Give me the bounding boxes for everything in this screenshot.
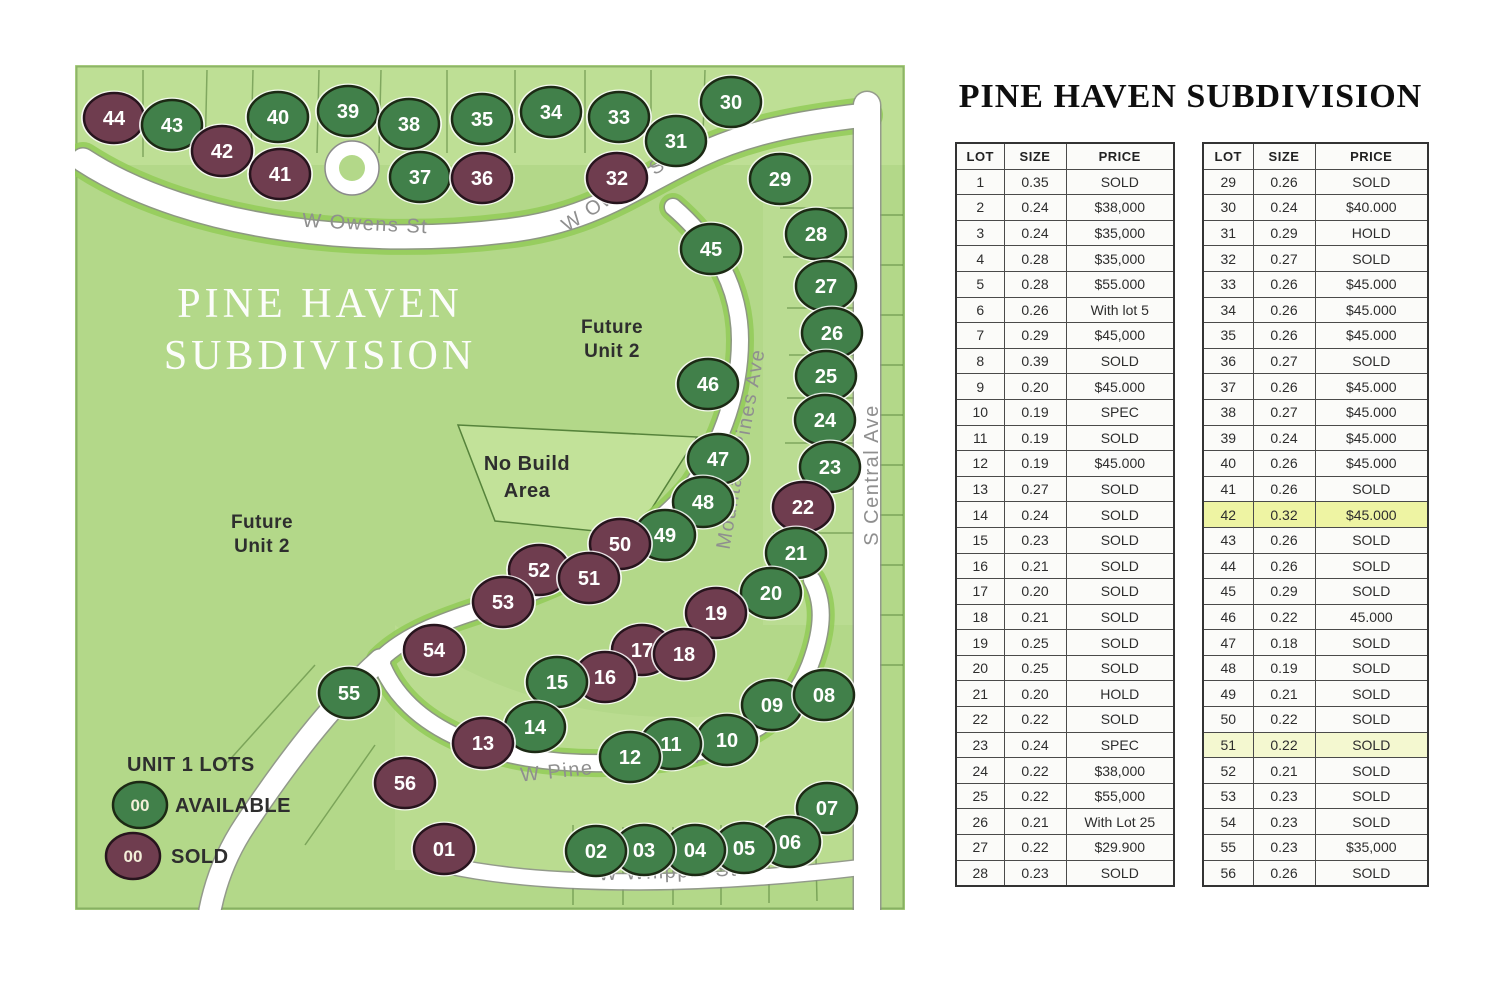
lot-cell: 5 (956, 271, 1004, 297)
size-cell: 0.21 (1004, 604, 1066, 630)
lot-number: 22 (792, 497, 814, 519)
price-cell: SOLD (1066, 348, 1174, 374)
lot-cell: 8 (956, 348, 1004, 374)
lot-number: 18 (673, 644, 695, 666)
table-row: 520.21SOLD (1203, 758, 1428, 784)
map-lot-42: 42 (189, 124, 255, 179)
lot-cell: 12 (956, 451, 1004, 477)
price-cell: HOLD (1315, 220, 1428, 246)
table-row: 550.23$35,000 (1203, 835, 1428, 861)
price-cell: SOLD (1315, 527, 1428, 553)
price-cell: $35,000 (1066, 220, 1174, 246)
lot-number: 15 (546, 672, 568, 694)
table-row: 130.27SOLD (956, 476, 1174, 502)
size-cell: 0.27 (1004, 476, 1066, 502)
lot-cell: 27 (956, 835, 1004, 861)
lot-cell: 23 (956, 732, 1004, 758)
lot-cell: 14 (956, 502, 1004, 528)
size-cell: 0.22 (1004, 783, 1066, 809)
price-cell: $55.000 (1066, 271, 1174, 297)
subdivision-map: PINE HAVEN SUBDIVISION Future Unit 2 Fut… (75, 65, 905, 910)
lot-cell: 38 (1203, 399, 1253, 425)
lot-number: 36 (471, 168, 493, 190)
table-header-row: LOTSIZEPRICE (1203, 143, 1428, 169)
size-cell: 0.23 (1253, 835, 1315, 861)
lot-number: 29 (769, 169, 791, 191)
lot-cell: 20 (956, 655, 1004, 681)
table-row: 390.24$45.000 (1203, 425, 1428, 451)
no-build-area-label-line2: Area (504, 480, 551, 502)
size-cell: 0.24 (1004, 732, 1066, 758)
table-row: 70.29$45,000 (956, 323, 1174, 349)
lot-number: 02 (585, 841, 607, 863)
size-cell: 0.20 (1004, 374, 1066, 400)
lot-cell: 41 (1203, 476, 1253, 502)
price-cell: 45.000 (1315, 604, 1428, 630)
map-svg: PINE HAVEN SUBDIVISION Future Unit 2 Fut… (75, 65, 905, 910)
lot-number: 38 (398, 114, 420, 136)
lot-number: 13 (472, 733, 494, 755)
size-cell: 0.25 (1004, 630, 1066, 656)
table-row: 340.26$45.000 (1203, 297, 1428, 323)
size-cell: 0.29 (1004, 323, 1066, 349)
table-row: 90.20$45.000 (956, 374, 1174, 400)
lot-cell: 25 (956, 783, 1004, 809)
lot-number: 07 (816, 798, 838, 820)
table-row: 240.22$38,000 (956, 758, 1174, 784)
map-lot-10: 10 (694, 713, 760, 768)
table-row: 10.35SOLD (956, 169, 1174, 195)
price-cell: SOLD (1315, 732, 1428, 758)
table-row: 20.24$38,000 (956, 195, 1174, 221)
size-cell: 0.27 (1253, 399, 1315, 425)
lot-cell: 48 (1203, 655, 1253, 681)
lot-cell: 53 (1203, 783, 1253, 809)
table-row: 40.28$35,000 (956, 246, 1174, 272)
table-header-row: LOTSIZEPRICE (956, 143, 1174, 169)
lot-number: 28 (805, 224, 827, 246)
table-row: 280.23SOLD (956, 860, 1174, 886)
col-header-price: PRICE (1315, 143, 1428, 169)
price-cell: $29.900 (1066, 835, 1174, 861)
price-cell: $38,000 (1066, 195, 1174, 221)
size-cell: 0.26 (1253, 860, 1315, 886)
lot-number: 21 (785, 543, 807, 565)
lot-number: 46 (697, 374, 719, 396)
size-cell: 0.22 (1253, 604, 1315, 630)
size-cell: 0.24 (1004, 502, 1066, 528)
lot-cell: 56 (1203, 860, 1253, 886)
table-row: 480.19SOLD (1203, 655, 1428, 681)
size-cell: 0.22 (1004, 835, 1066, 861)
table-row: 300.24$40.000 (1203, 195, 1428, 221)
future-unit-2-right-line1: Future (581, 317, 643, 338)
table-row: 430.26SOLD (1203, 527, 1428, 553)
price-cell: $45,000 (1066, 323, 1174, 349)
map-watermark-line1: PINE HAVEN (177, 281, 462, 327)
map-lot-13: 13 (450, 716, 516, 771)
lot-cell: 51 (1203, 732, 1253, 758)
lot-number: 37 (409, 167, 431, 189)
map-lot-02: 02 (563, 824, 629, 879)
legend-available-sample: 00 (131, 796, 150, 815)
lot-number: 45 (700, 239, 722, 261)
future-unit-2-left-line2: Unit 2 (234, 536, 290, 557)
map-lot-53: 53 (470, 575, 536, 630)
size-cell: 0.22 (1004, 758, 1066, 784)
price-cell: SOLD (1315, 758, 1428, 784)
map-lot-44: 44 (81, 91, 147, 146)
col-header-lot: LOT (1203, 143, 1253, 169)
size-cell: 0.19 (1253, 655, 1315, 681)
size-cell: 0.27 (1253, 246, 1315, 272)
lot-cell: 30 (1203, 195, 1253, 221)
table-row: 350.26$45.000 (1203, 323, 1428, 349)
size-cell: 0.26 (1253, 476, 1315, 502)
table-row: 100.19SPEC (956, 399, 1174, 425)
table-row: 490.21SOLD (1203, 681, 1428, 707)
map-lot-37: 37 (387, 150, 453, 205)
col-header-size: SIZE (1004, 143, 1066, 169)
price-cell: SOLD (1315, 655, 1428, 681)
lot-cell: 39 (1203, 425, 1253, 451)
map-lot-28: 28 (783, 207, 849, 262)
lot-cell: 10 (956, 399, 1004, 425)
lot-number: 16 (594, 667, 616, 689)
price-cell: SOLD (1066, 502, 1174, 528)
table-row: 80.39SOLD (956, 348, 1174, 374)
lot-cell: 46 (1203, 604, 1253, 630)
table-row: 250.22$55,000 (956, 783, 1174, 809)
size-cell: 0.26 (1253, 271, 1315, 297)
size-cell: 0.23 (1253, 783, 1315, 809)
size-cell: 0.23 (1004, 860, 1066, 886)
future-unit-2-left-line1: Future (231, 512, 293, 533)
price-cell: $45.000 (1315, 323, 1428, 349)
size-cell: 0.39 (1004, 348, 1066, 374)
lot-number: 41 (269, 164, 291, 186)
lot-cell: 40 (1203, 451, 1253, 477)
table-row: 330.26$45.000 (1203, 271, 1428, 297)
col-header-price: PRICE (1066, 143, 1174, 169)
street-label: S Central Ave (861, 404, 883, 545)
no-build-area-label-line1: No Build (484, 453, 570, 475)
map-lot-33: 33 (586, 90, 652, 145)
lot-cell: 22 (956, 707, 1004, 733)
table-row: 420.32$45.000 (1203, 502, 1428, 528)
table-row: 310.29HOLD (1203, 220, 1428, 246)
lot-number: 42 (211, 141, 233, 163)
lot-cell: 31 (1203, 220, 1253, 246)
lot-cell: 50 (1203, 707, 1253, 733)
lot-cell: 28 (956, 860, 1004, 886)
lot-cell: 33 (1203, 271, 1253, 297)
price-cell: SOLD (1066, 860, 1174, 886)
table-row: 440.26SOLD (1203, 553, 1428, 579)
table-row: 110.19SOLD (956, 425, 1174, 451)
lot-cell: 3 (956, 220, 1004, 246)
table-row: 410.26SOLD (1203, 476, 1428, 502)
lot-number: 27 (815, 276, 837, 298)
table-row: 210.20HOLD (956, 681, 1174, 707)
lot-number: 26 (821, 323, 843, 345)
col-header-size: SIZE (1253, 143, 1315, 169)
size-cell: 0.32 (1253, 502, 1315, 528)
price-cell: $35,000 (1315, 835, 1428, 861)
price-cell: $45.000 (1315, 451, 1428, 477)
size-cell: 0.19 (1004, 399, 1066, 425)
lot-cell: 21 (956, 681, 1004, 707)
table-row: 220.22SOLD (956, 707, 1174, 733)
price-cell: With lot 5 (1066, 297, 1174, 323)
size-cell: 0.21 (1253, 681, 1315, 707)
size-cell: 0.21 (1253, 758, 1315, 784)
map-lot-01: 01 (411, 822, 477, 877)
lot-cell: 44 (1203, 553, 1253, 579)
price-cell: HOLD (1066, 681, 1174, 707)
price-cell: SOLD (1315, 553, 1428, 579)
table-row: 150.23SOLD (956, 527, 1174, 553)
map-lot-34: 34 (518, 85, 584, 140)
lot-number: 52 (528, 560, 550, 582)
table-row: 160.21SOLD (956, 553, 1174, 579)
price-cell: With Lot 25 (1066, 809, 1174, 835)
lot-number: 50 (609, 534, 631, 556)
table-row: 290.26SOLD (1203, 169, 1428, 195)
table-row: 120.19$45.000 (956, 451, 1174, 477)
size-cell: 0.24 (1253, 195, 1315, 221)
map-lot-45: 45 (678, 222, 744, 277)
price-cell: SOLD (1315, 169, 1428, 195)
size-cell: 0.29 (1253, 579, 1315, 605)
lot-number: 40 (267, 107, 289, 129)
lot-cell: 32 (1203, 246, 1253, 272)
map-watermark-line2: SUBDIVISION (164, 333, 476, 379)
price-cell: $45.000 (1066, 451, 1174, 477)
future-unit-2-right-line2: Unit 2 (584, 341, 640, 362)
size-cell: 0.22 (1004, 707, 1066, 733)
lot-number: 04 (684, 840, 707, 862)
price-cell: $45.000 (1315, 374, 1428, 400)
table-row: 50.28$55.000 (956, 271, 1174, 297)
map-lot-08: 08 (791, 668, 857, 723)
table-row: 260.21With Lot 25 (956, 809, 1174, 835)
table-row: 170.20SOLD (956, 579, 1174, 605)
lot-number: 30 (720, 92, 742, 114)
lot-number: 51 (578, 568, 600, 590)
size-cell: 0.26 (1004, 297, 1066, 323)
map-lot-24: 24 (792, 393, 858, 448)
legend-sold-label: SOLD (171, 846, 229, 868)
lot-cell: 54 (1203, 809, 1253, 835)
table-row: 450.29SOLD (1203, 579, 1428, 605)
lot-cell: 6 (956, 297, 1004, 323)
lot-cell: 45 (1203, 579, 1253, 605)
lot-cell: 47 (1203, 630, 1253, 656)
lot-number: 23 (819, 457, 841, 479)
lot-number: 25 (815, 366, 837, 388)
table-row: 500.22SOLD (1203, 707, 1428, 733)
lot-number: 55 (338, 683, 360, 705)
price-cell: $40.000 (1315, 195, 1428, 221)
size-cell: 0.24 (1253, 425, 1315, 451)
map-lot-41: 41 (247, 147, 313, 202)
lot-cell: 36 (1203, 348, 1253, 374)
lot-number: 10 (716, 730, 738, 752)
lot-number: 31 (665, 131, 687, 153)
table-row: 60.26With lot 5 (956, 297, 1174, 323)
table-row: 190.25SOLD (956, 630, 1174, 656)
map-lot-54: 54 (401, 623, 467, 678)
table-row: 470.18SOLD (1203, 630, 1428, 656)
table-row: 140.24SOLD (956, 502, 1174, 528)
lot-cell: 7 (956, 323, 1004, 349)
size-cell: 0.28 (1004, 246, 1066, 272)
lot-table-29-56: LOTSIZEPRICE290.26SOLD300.24$40.000310.2… (1202, 142, 1429, 887)
price-cell: $45.000 (1315, 297, 1428, 323)
lot-cell: 29 (1203, 169, 1253, 195)
size-cell: 0.20 (1004, 579, 1066, 605)
price-cell: $35,000 (1066, 246, 1174, 272)
lot-cell: 1 (956, 169, 1004, 195)
lot-cell: 26 (956, 809, 1004, 835)
size-cell: 0.26 (1253, 553, 1315, 579)
price-cell: SOLD (1066, 527, 1174, 553)
map-lot-56: 56 (372, 756, 438, 811)
lot-number: 12 (619, 747, 641, 769)
lot-number: 33 (608, 107, 630, 129)
price-cell: SOLD (1066, 169, 1174, 195)
map-lot-12: 12 (597, 730, 663, 785)
table-row: 380.27$45.000 (1203, 399, 1428, 425)
price-cell: SOLD (1066, 707, 1174, 733)
price-cell: SOLD (1315, 809, 1428, 835)
map-lot-35: 35 (449, 92, 515, 147)
price-cell: SOLD (1315, 783, 1428, 809)
map-lot-30: 30 (698, 75, 764, 130)
map-lot-39: 39 (315, 84, 381, 139)
lot-number: 01 (433, 839, 455, 861)
lot-number: 34 (540, 102, 563, 124)
lot-number: 32 (606, 168, 628, 190)
lot-cell: 43 (1203, 527, 1253, 553)
lot-cell: 34 (1203, 297, 1253, 323)
table-row: 180.21SOLD (956, 604, 1174, 630)
page: PINE HAVEN SUBDIVISION Future Unit 2 Fut… (0, 0, 1500, 989)
price-cell: SOLD (1066, 579, 1174, 605)
table-row: 370.26$45.000 (1203, 374, 1428, 400)
size-cell: 0.23 (1253, 809, 1315, 835)
lot-number: 05 (733, 838, 755, 860)
lot-number: 03 (633, 840, 655, 862)
size-cell: 0.28 (1004, 271, 1066, 297)
map-lot-36: 36 (449, 151, 515, 206)
lot-number: 14 (524, 717, 547, 739)
price-cell: $38,000 (1066, 758, 1174, 784)
lot-cell: 2 (956, 195, 1004, 221)
lot-number: 56 (394, 773, 416, 795)
price-cell: SOLD (1315, 707, 1428, 733)
table-row: 270.22$29.900 (956, 835, 1174, 861)
legend-available-label: AVAILABLE (175, 795, 291, 817)
price-cell: SOLD (1315, 476, 1428, 502)
lot-cell: 17 (956, 579, 1004, 605)
lot-cell: 4 (956, 246, 1004, 272)
lot-number: 20 (760, 583, 782, 605)
size-cell: 0.25 (1004, 655, 1066, 681)
table-row: 400.26$45.000 (1203, 451, 1428, 477)
map-lot-32: 32 (584, 151, 650, 206)
lot-number: 08 (813, 685, 835, 707)
price-cell: $45.000 (1315, 399, 1428, 425)
size-cell: 0.24 (1004, 195, 1066, 221)
lot-cell: 49 (1203, 681, 1253, 707)
price-cell: $55,000 (1066, 783, 1174, 809)
price-cell: SOLD (1066, 604, 1174, 630)
lot-cell: 13 (956, 476, 1004, 502)
size-cell: 0.24 (1004, 220, 1066, 246)
lot-cell: 19 (956, 630, 1004, 656)
lot-cell: 24 (956, 758, 1004, 784)
price-cell: SOLD (1315, 348, 1428, 374)
lot-number: 24 (814, 410, 837, 432)
lot-cell: 15 (956, 527, 1004, 553)
price-cell: SOLD (1315, 579, 1428, 605)
price-cell: $45.000 (1315, 271, 1428, 297)
map-lot-31: 31 (643, 114, 709, 169)
map-lot-29: 29 (747, 152, 813, 207)
lot-cell: 9 (956, 374, 1004, 400)
lot-cell: 42 (1203, 502, 1253, 528)
lot-number: 53 (492, 592, 514, 614)
page-title: PINE HAVEN SUBDIVISION (958, 78, 1423, 116)
lot-cell: 52 (1203, 758, 1253, 784)
size-cell: 0.29 (1253, 220, 1315, 246)
lot-cell: 35 (1203, 323, 1253, 349)
size-cell: 0.22 (1253, 707, 1315, 733)
table-row: 320.27SOLD (1203, 246, 1428, 272)
lot-number: 17 (631, 640, 653, 662)
lot-number: 11 (660, 734, 681, 756)
map-lot-40: 40 (245, 90, 311, 145)
size-cell: 0.20 (1004, 681, 1066, 707)
size-cell: 0.27 (1253, 348, 1315, 374)
lot-cell: 55 (1203, 835, 1253, 861)
col-header-lot: LOT (956, 143, 1004, 169)
size-cell: 0.26 (1253, 323, 1315, 349)
size-cell: 0.22 (1253, 732, 1315, 758)
price-cell: SPEC (1066, 732, 1174, 758)
map-lot-51: 51 (556, 551, 622, 606)
map-lot-46: 46 (675, 357, 741, 412)
lot-number: 35 (471, 109, 493, 131)
price-cell: SPEC (1066, 399, 1174, 425)
map-lot-27: 27 (793, 259, 859, 314)
size-cell: 0.18 (1253, 630, 1315, 656)
map-lot-55: 55 (316, 666, 382, 721)
price-cell: $45.000 (1315, 502, 1428, 528)
price-cell: SOLD (1066, 553, 1174, 579)
size-cell: 0.26 (1253, 169, 1315, 195)
table-row: 530.23SOLD (1203, 783, 1428, 809)
size-cell: 0.26 (1253, 297, 1315, 323)
price-cell: SOLD (1315, 860, 1428, 886)
table-row: 540.23SOLD (1203, 809, 1428, 835)
lot-number: 19 (705, 603, 727, 625)
table-row: 360.27SOLD (1203, 348, 1428, 374)
lot-number: 48 (692, 492, 714, 514)
lot-number: 54 (423, 640, 446, 662)
